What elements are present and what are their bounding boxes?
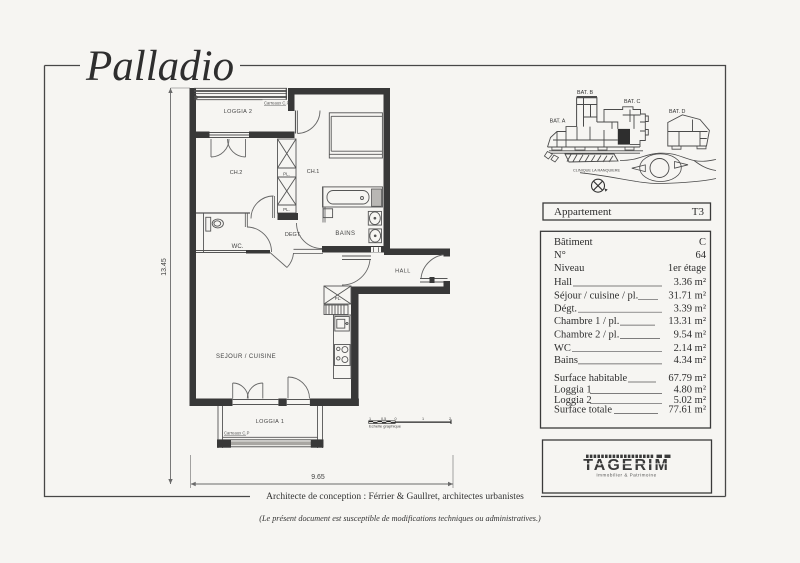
svg-text:64: 64: [696, 250, 707, 261]
svg-text:13.45: 13.45: [161, 258, 168, 276]
svg-text:WC.: WC.: [232, 244, 244, 250]
svg-text:Bâtiment: Bâtiment: [554, 237, 593, 248]
svg-text:BAT. D: BAT. D: [669, 109, 685, 115]
svg-text:CH.2: CH.2: [230, 170, 243, 176]
svg-text:C: C: [699, 237, 706, 248]
svg-text:Architecte de conception : Fér: Architecte de conception : Férrier & Gau…: [266, 492, 524, 502]
svg-text:WC: WC: [554, 343, 571, 354]
svg-text:N°: N°: [554, 250, 566, 261]
svg-text:Dégt.: Dégt.: [554, 303, 577, 314]
svg-text:31.71 m²: 31.71 m²: [668, 290, 706, 301]
svg-text:(Le présent document est susce: (Le présent document est susceptible de …: [259, 514, 541, 523]
svg-text:CLINIQUE LA RANQUIERE: CLINIQUE LA RANQUIERE: [573, 169, 621, 173]
svg-text:SEJOUR / CUISINE: SEJOUR / CUISINE: [216, 354, 276, 360]
svg-text:BAT. B: BAT. B: [577, 90, 593, 96]
svg-text:LOGGIA 1: LOGGIA 1: [256, 419, 285, 425]
svg-text:Chambre 1 / pl.: Chambre 1 / pl.: [554, 316, 619, 327]
svg-text:1er étage: 1er étage: [668, 263, 707, 274]
svg-text:9.54 m²: 9.54 m²: [674, 330, 706, 341]
svg-text:PL.: PL.: [335, 296, 342, 301]
svg-text:2.14 m²: 2.14 m²: [674, 343, 706, 354]
svg-text:PL.: PL.: [283, 172, 290, 177]
svg-text:Hall: Hall: [554, 277, 572, 288]
svg-text:BAT. C: BAT. C: [624, 99, 640, 105]
svg-text:1: 1: [422, 417, 424, 421]
svg-text:Appartement: Appartement: [554, 206, 611, 218]
svg-text:LOGGIA 2: LOGGIA 2: [224, 109, 253, 115]
svg-text:Bains: Bains: [554, 355, 578, 366]
svg-text:Carreaux C.P: Carreaux C.P: [264, 101, 290, 106]
svg-text:BAT. A: BAT. A: [550, 119, 566, 125]
svg-text:Immobilier & Patrimoine: Immobilier & Patrimoine: [596, 473, 656, 478]
svg-text:DEGT.: DEGT.: [285, 232, 302, 238]
svg-text:CH.1: CH.1: [307, 169, 320, 175]
svg-text:Surface totale: Surface totale: [554, 405, 612, 416]
svg-text:Carreaux C.P: Carreaux C.P: [224, 431, 250, 436]
svg-text:HALL: HALL: [395, 269, 411, 275]
svg-text:1: 1: [369, 417, 371, 421]
svg-text:Surface habitable: Surface habitable: [554, 373, 628, 384]
svg-text:3.39 m²: 3.39 m²: [674, 303, 706, 314]
svg-text:PL.: PL.: [283, 207, 290, 212]
svg-text:13.31 m²: 13.31 m²: [668, 316, 706, 327]
svg-text:T3: T3: [692, 206, 705, 218]
svg-text:Niveau: Niveau: [554, 263, 585, 274]
svg-text:Chambre 2 / pl.: Chambre 2 / pl.: [554, 330, 619, 341]
svg-text:3.36 m²: 3.36 m²: [674, 277, 706, 288]
svg-text:0.5: 0.5: [381, 417, 386, 421]
svg-text:Echelle graphique: Echelle graphique: [369, 424, 402, 429]
svg-text:67.79 m²: 67.79 m²: [668, 373, 706, 384]
svg-text:77.61 m²: 77.61 m²: [668, 405, 706, 416]
svg-text:Palladio: Palladio: [85, 43, 234, 90]
svg-text:Séjour / cuisine / pl.: Séjour / cuisine / pl.: [554, 290, 638, 301]
svg-text:4.34 m²: 4.34 m²: [674, 355, 706, 366]
svg-text:BAINS: BAINS: [335, 231, 355, 237]
svg-text:0: 0: [395, 417, 397, 421]
svg-text:9.65: 9.65: [311, 474, 325, 481]
